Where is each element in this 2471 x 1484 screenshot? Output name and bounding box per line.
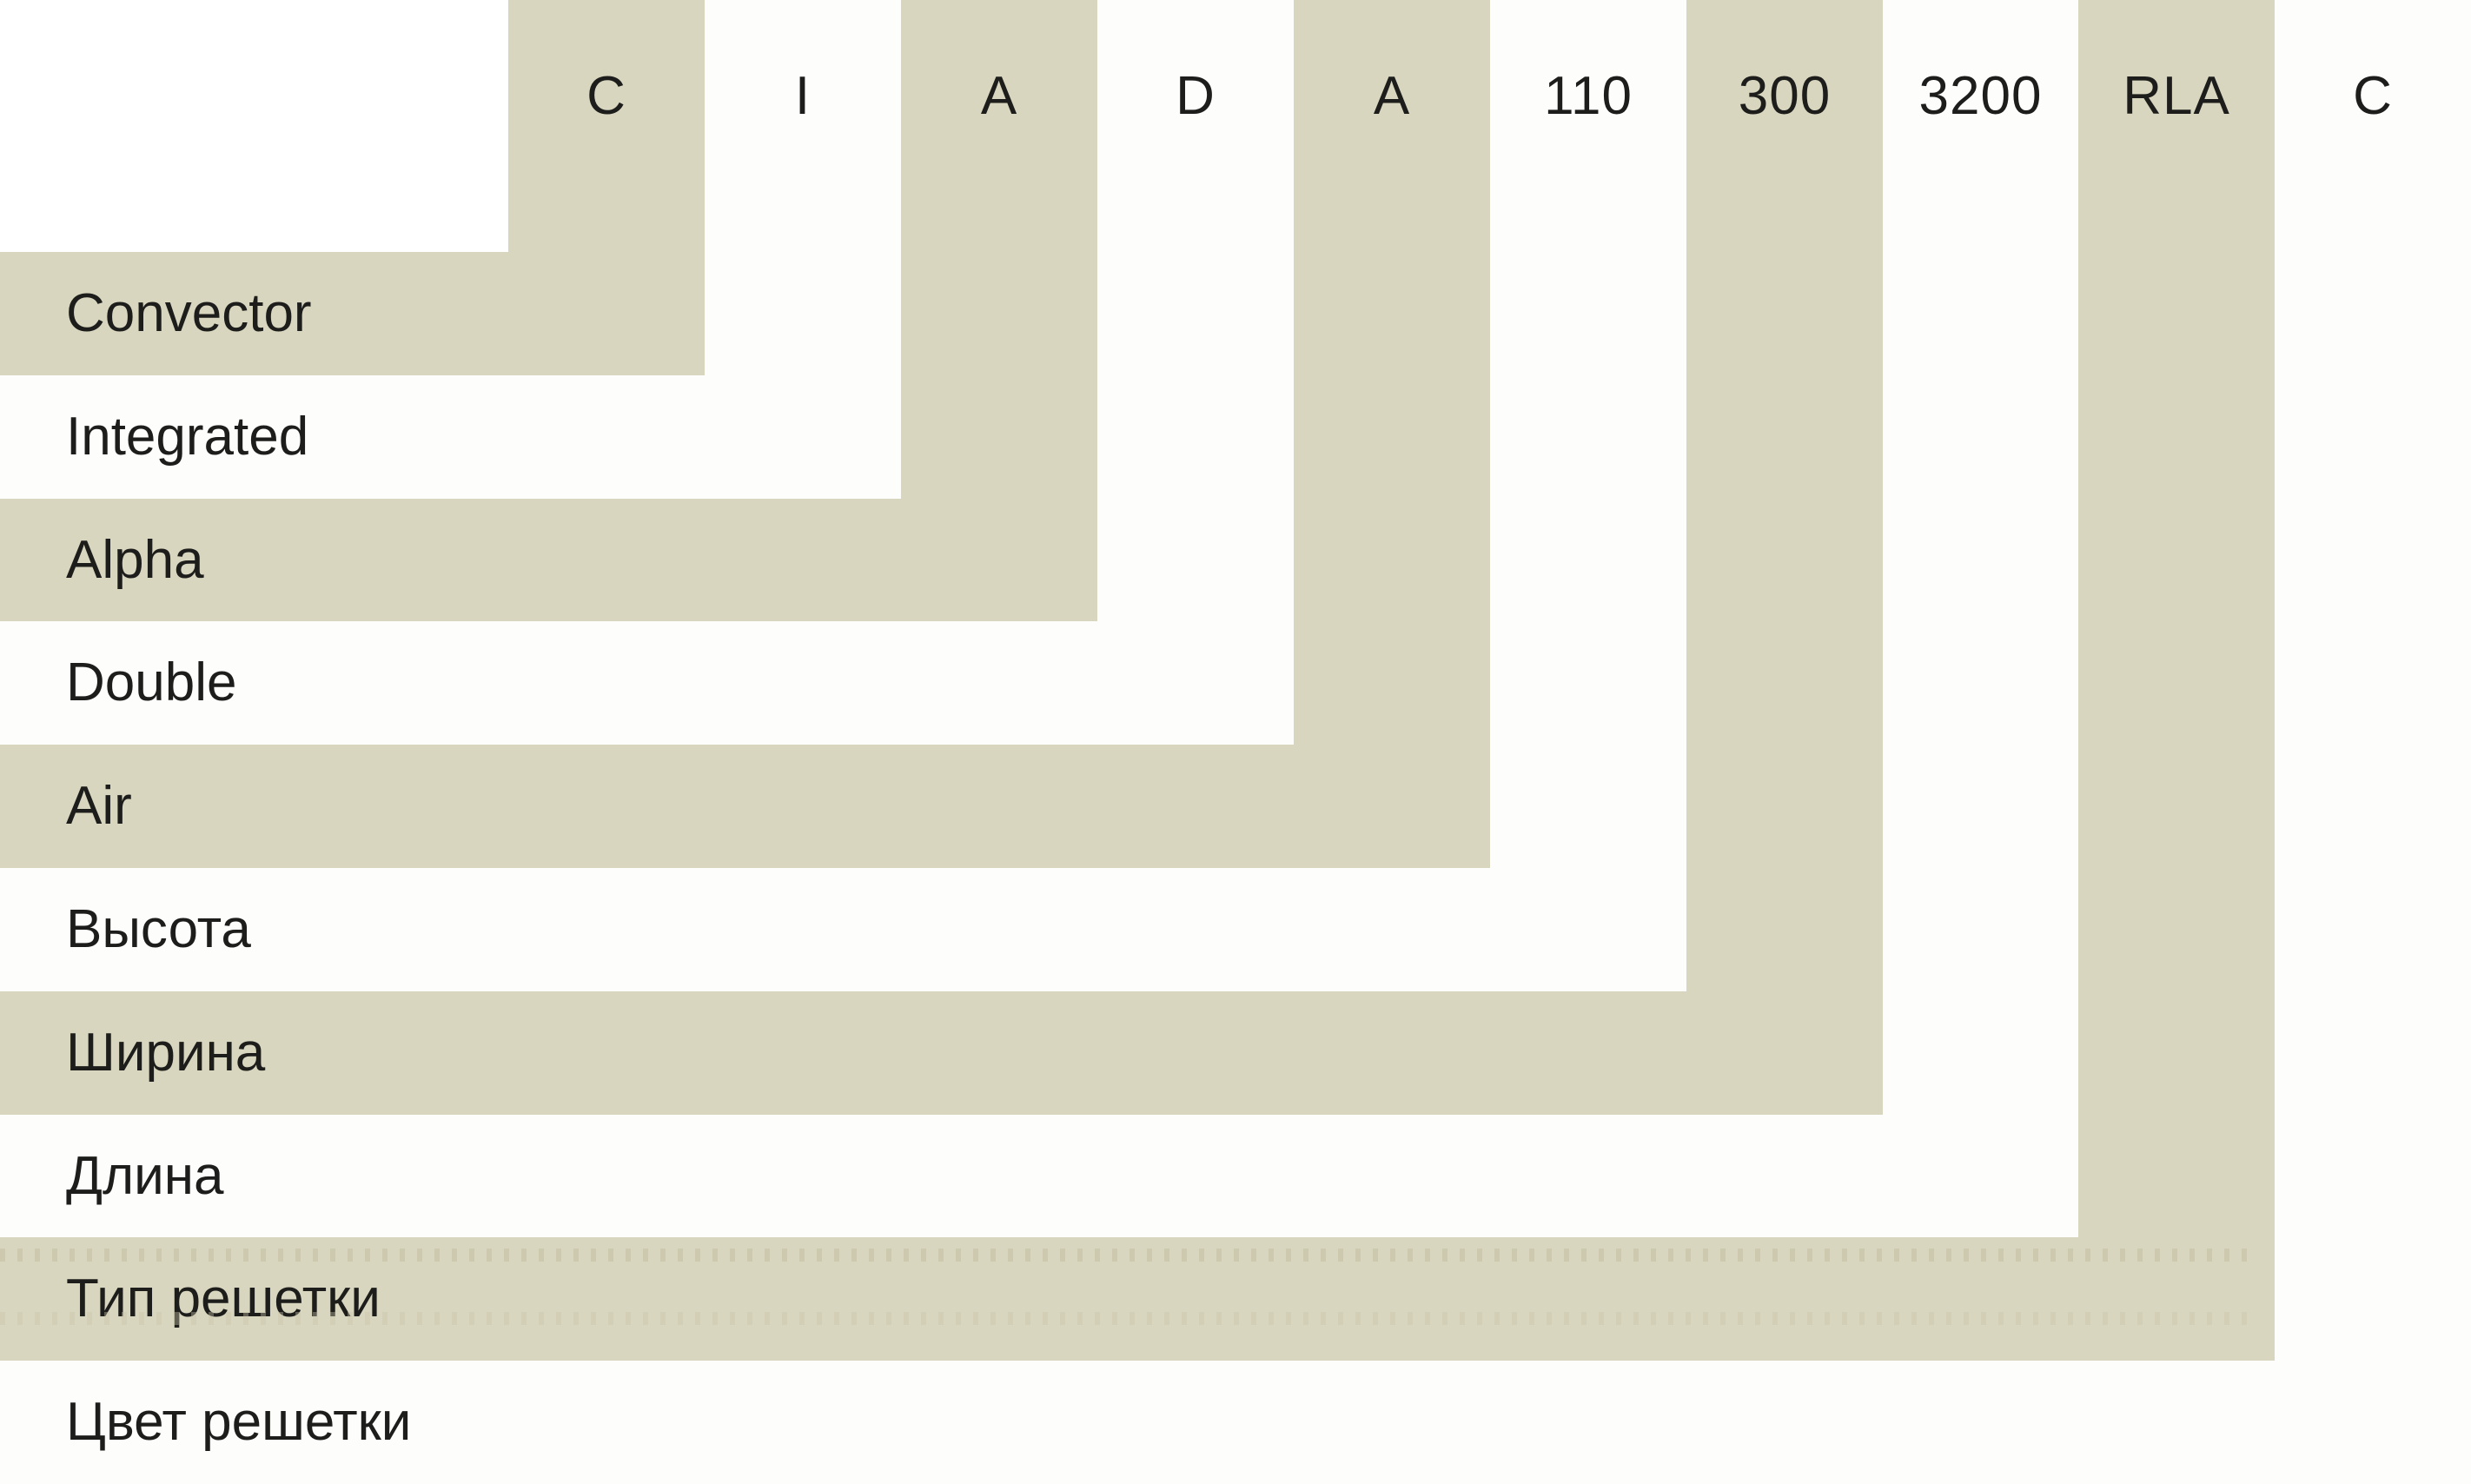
label-text-4: Air (0, 779, 132, 833)
label-row-4: Air (0, 745, 1490, 868)
label-text-3: Double (0, 656, 236, 710)
label-text-2: Alpha (0, 533, 204, 587)
label-row-6: Ширина (0, 991, 1883, 1115)
code-column-8 (2078, 0, 2275, 1361)
label-text-0: Convector (0, 287, 312, 341)
dotted-line-bottom (0, 1312, 2257, 1325)
code-value-4: A (1294, 0, 1490, 193)
label-text-5: Высота (0, 903, 251, 957)
label-text-6: Ширина (0, 1026, 265, 1080)
code-value-9: C (2275, 0, 2471, 193)
code-column-9 (2275, 0, 2471, 1484)
label-row-7: Длина (0, 1115, 2078, 1237)
label-text-1: Integrated (0, 410, 308, 464)
code-value-8: RLA (2078, 0, 2275, 193)
code-value-0: C (508, 0, 705, 193)
label-row-2: Alpha (0, 499, 1097, 621)
code-value-7: 3200 (1883, 0, 2078, 193)
code-value-1: I (705, 0, 901, 193)
label-text-7: Длина (0, 1149, 224, 1203)
code-value-5: 110 (1490, 0, 1686, 193)
label-row-0: Convector (0, 252, 705, 375)
code-value-3: D (1097, 0, 1294, 193)
nomenclature-diagram: C Convector I Integrated A Alpha D Doubl… (0, 0, 2471, 1484)
label-row-3: Double (0, 621, 1294, 745)
label-row-8: Тип решетки (0, 1237, 2275, 1361)
label-row-9: Цвет решетки (0, 1361, 2471, 1484)
code-value-2: A (901, 0, 1097, 193)
code-value-6: 300 (1686, 0, 1883, 193)
label-text-9: Цвет решетки (0, 1395, 411, 1449)
dotted-line-top (0, 1249, 2257, 1262)
label-row-5: Высота (0, 868, 1686, 991)
label-row-1: Integrated (0, 375, 901, 499)
